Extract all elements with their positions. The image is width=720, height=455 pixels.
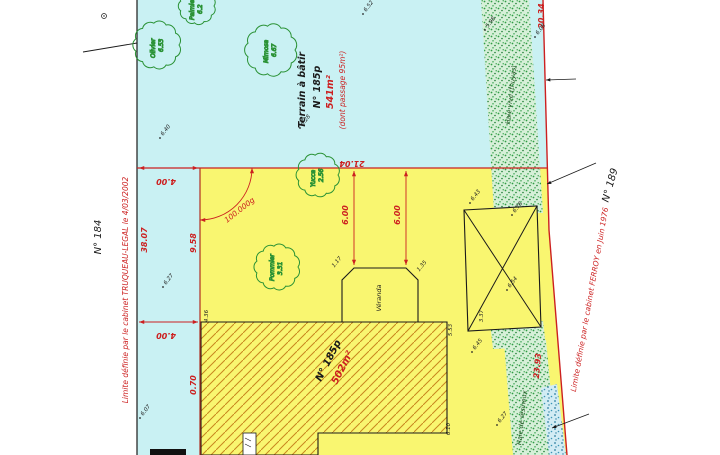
terrain-note-label: (dont passage 95m²): [338, 51, 347, 130]
tree-mimosa-name: Mimosa: [263, 40, 270, 63]
dim-parcel-left-lower: 0.70: [189, 375, 198, 395]
tree-olivier-name: Olivier: [150, 38, 157, 58]
tree-pommier-name: Pommier: [269, 254, 276, 281]
veranda-label: Véranda: [375, 285, 383, 312]
dim-veranda-right: 6.00: [393, 205, 402, 225]
crossed-building: [464, 206, 541, 331]
small-dim-5: 3.37: [479, 309, 485, 322]
dim-left-length: 38.07: [140, 227, 149, 253]
tree-palmier-name: Palmier: [189, 0, 196, 20]
survey-plan-page: Olivier 6.53 Palmier 6.2 Mimosa 6.67 Yuc…: [0, 0, 720, 455]
tree-palmier-height: 6.2: [197, 4, 204, 14]
plan-canvas: Olivier 6.53 Palmier 6.2 Mimosa 6.67 Yuc…: [0, 0, 720, 455]
dim-top-offset: 4.00: [156, 177, 177, 186]
tree-olivier-height: 6.53: [158, 38, 165, 52]
small-dim-3: 5.53: [448, 323, 454, 336]
tree-yucca-name: Yucca: [310, 169, 317, 187]
bottom-cut-element: [150, 449, 186, 455]
dim-parcel-top-width: 21.04: [339, 159, 365, 168]
small-dim-0: 4.36: [204, 309, 210, 322]
limit-note-left: Limite définie par le cabinet TRUQUEAU-L…: [121, 177, 130, 404]
small-dim-4: 6.10: [446, 422, 452, 435]
terrain-area-label: 541m²: [325, 74, 336, 109]
tree-yucca-height: 2.56: [318, 168, 325, 182]
dim-veranda-left: 6.00: [341, 205, 350, 225]
dim-mid-offset: 4.00: [156, 331, 177, 340]
terrain-label-line2: N° 185p: [312, 65, 323, 108]
tree-mimosa-height: 6.67: [271, 43, 278, 57]
left-margin: [0, 0, 137, 455]
dim-parcel-left-upper: 9.58: [189, 233, 198, 253]
small-annex-rect: [243, 433, 256, 455]
tree-pommier-height: 3.31: [277, 262, 284, 275]
neighbor-left-label: N° 184: [93, 220, 104, 255]
